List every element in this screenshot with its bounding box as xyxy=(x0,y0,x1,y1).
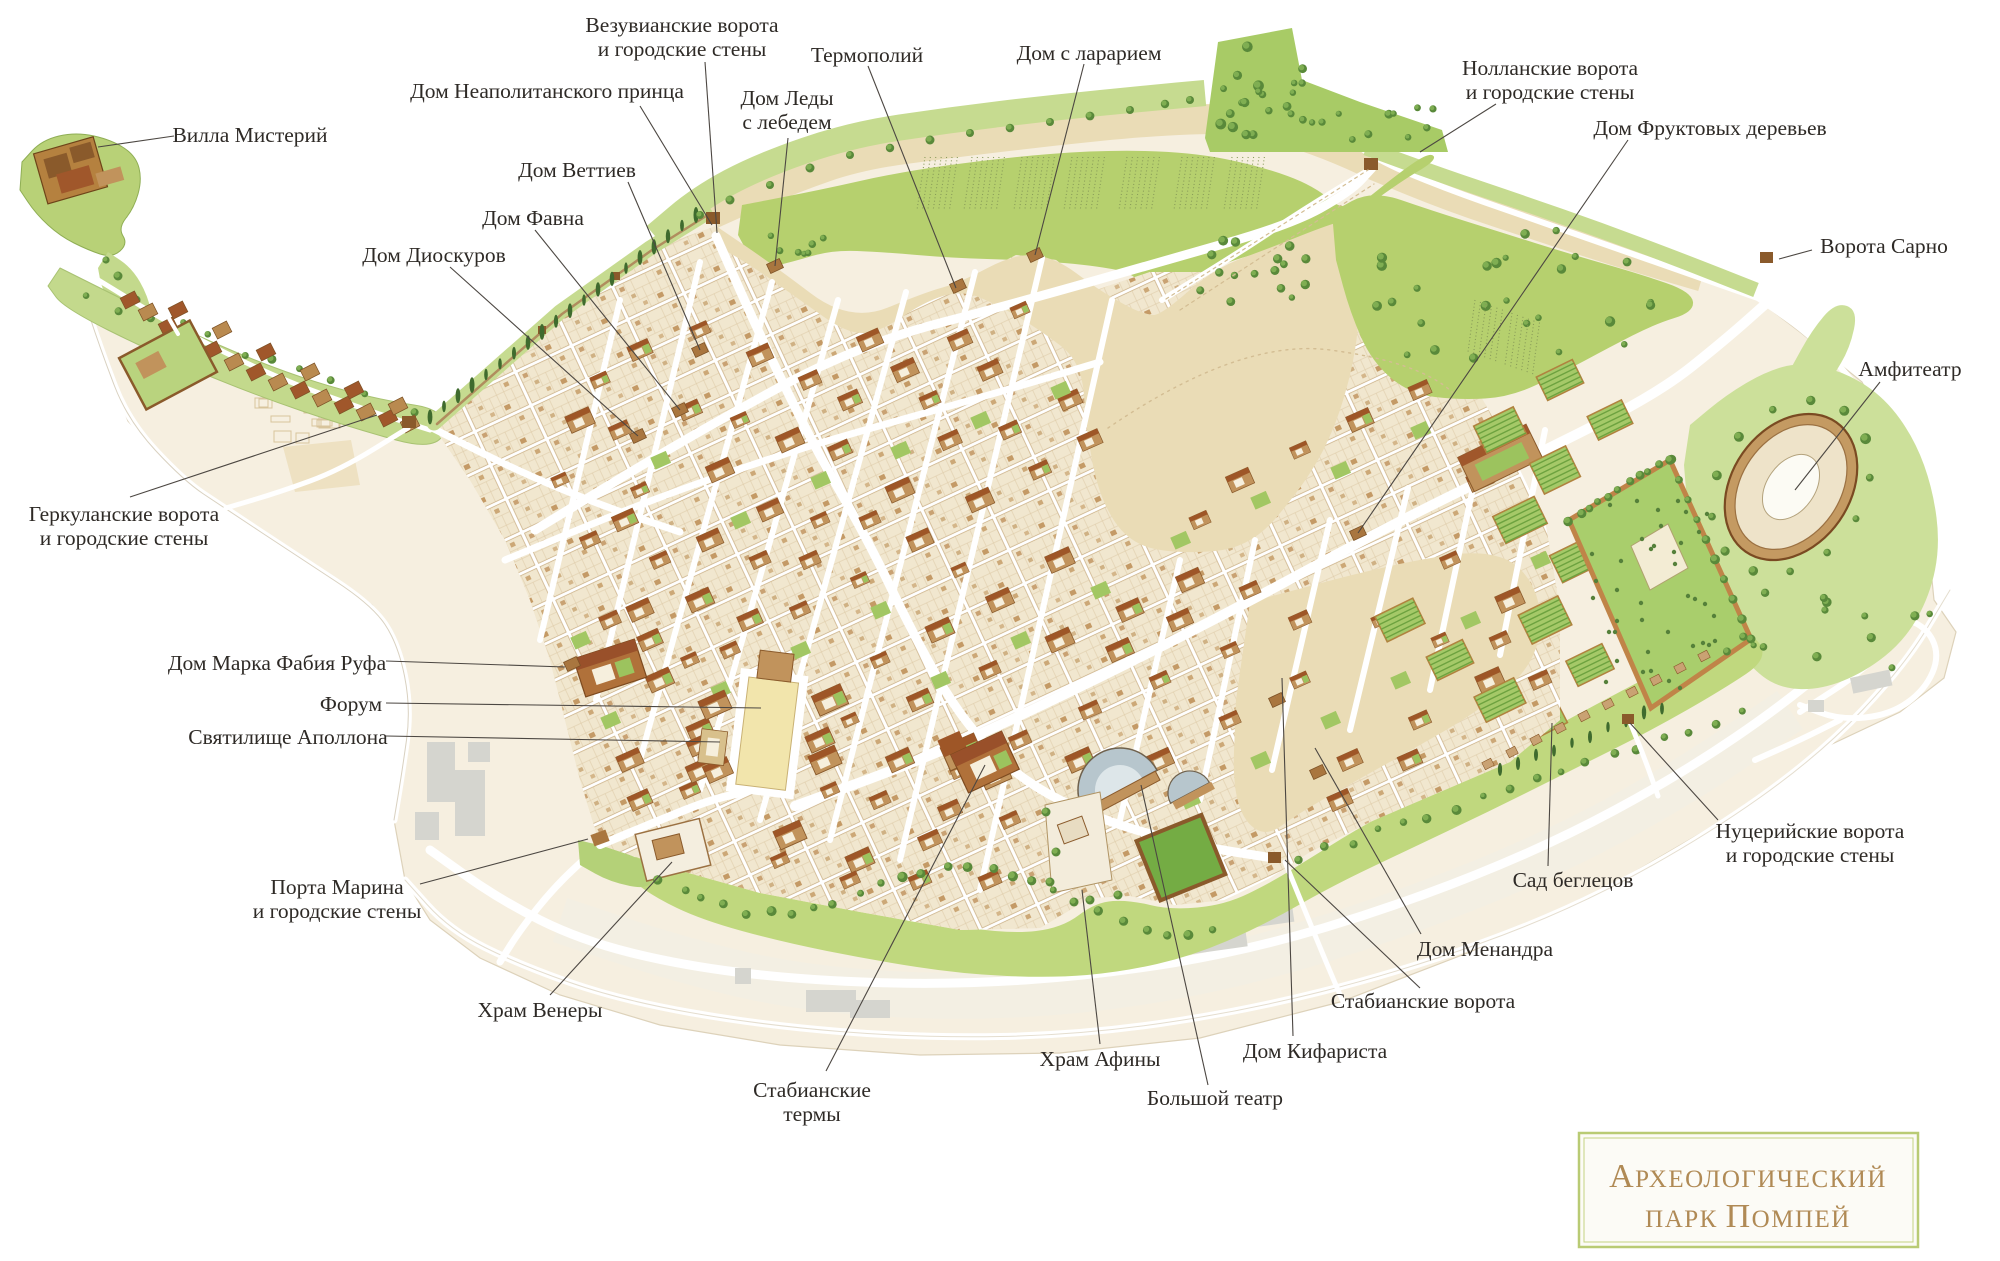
svg-text:Дом Леды: Дом Леды xyxy=(740,86,833,110)
svg-text:Святилище Аполлона: Святилище Аполлона xyxy=(188,725,388,749)
svg-text:Нолланские ворота: Нолланские ворота xyxy=(1462,56,1639,80)
svg-text:Везувианские ворота: Везувианские ворота xyxy=(585,13,779,37)
svg-text:Форум: Форум xyxy=(320,692,383,716)
svg-text:Нуцерийские ворота: Нуцерийские ворота xyxy=(1716,819,1905,843)
svg-text:Термополий: Термополий xyxy=(811,43,923,67)
svg-text:Храм Афины: Храм Афины xyxy=(1040,1047,1161,1071)
svg-text:термы: термы xyxy=(783,1102,840,1126)
svg-text:Геркуланские ворота: Геркуланские ворота xyxy=(29,502,220,526)
svg-text:Стабианские ворота: Стабианские ворота xyxy=(1331,989,1516,1013)
svg-text:Порта Марина: Порта Марина xyxy=(270,875,404,899)
svg-text:Дом Диоскуров: Дом Диоскуров xyxy=(362,243,506,267)
svg-text:Сад беглецов: Сад беглецов xyxy=(1513,868,1634,892)
svg-text:Большой театр: Большой театр xyxy=(1147,1086,1283,1110)
svg-text:и городские стены: и городские стены xyxy=(598,37,767,61)
svg-text:и городские стены: и городские стены xyxy=(253,899,422,923)
svg-text:Стабианские: Стабианские xyxy=(753,1078,871,1102)
svg-text:Дом Менандра: Дом Менандра xyxy=(1417,937,1554,961)
svg-text:Дом Кифариста: Дом Кифариста xyxy=(1243,1039,1388,1063)
svg-text:Дом Марка Фабия Руфа: Дом Марка Фабия Руфа xyxy=(168,651,387,675)
svg-text:Ворота Сарно: Ворота Сарно xyxy=(1820,234,1948,258)
svg-text:и городские стены: и городские стены xyxy=(40,526,209,550)
svg-text:с лебедем: с лебедем xyxy=(742,110,832,134)
svg-text:Дом с ларарием: Дом с ларарием xyxy=(1017,41,1162,65)
svg-text:Дом Веттиев: Дом Веттиев xyxy=(518,158,636,182)
svg-text:Вилла Мистерий: Вилла Мистерий xyxy=(172,123,327,147)
svg-text:Амфитеатр: Амфитеатр xyxy=(1858,357,1961,381)
svg-text:Дом Неаполитанского принца: Дом Неаполитанского принца xyxy=(410,79,684,103)
svg-text:Дом Фавна: Дом Фавна xyxy=(482,206,584,230)
svg-text:Дом Фруктовых деревьев: Дом Фруктовых деревьев xyxy=(1593,116,1826,140)
svg-text:Храм Венеры: Храм Венеры xyxy=(478,998,603,1022)
svg-text:и городские стены: и городские стены xyxy=(1726,843,1895,867)
svg-text:и городские стены: и городские стены xyxy=(1466,80,1635,104)
